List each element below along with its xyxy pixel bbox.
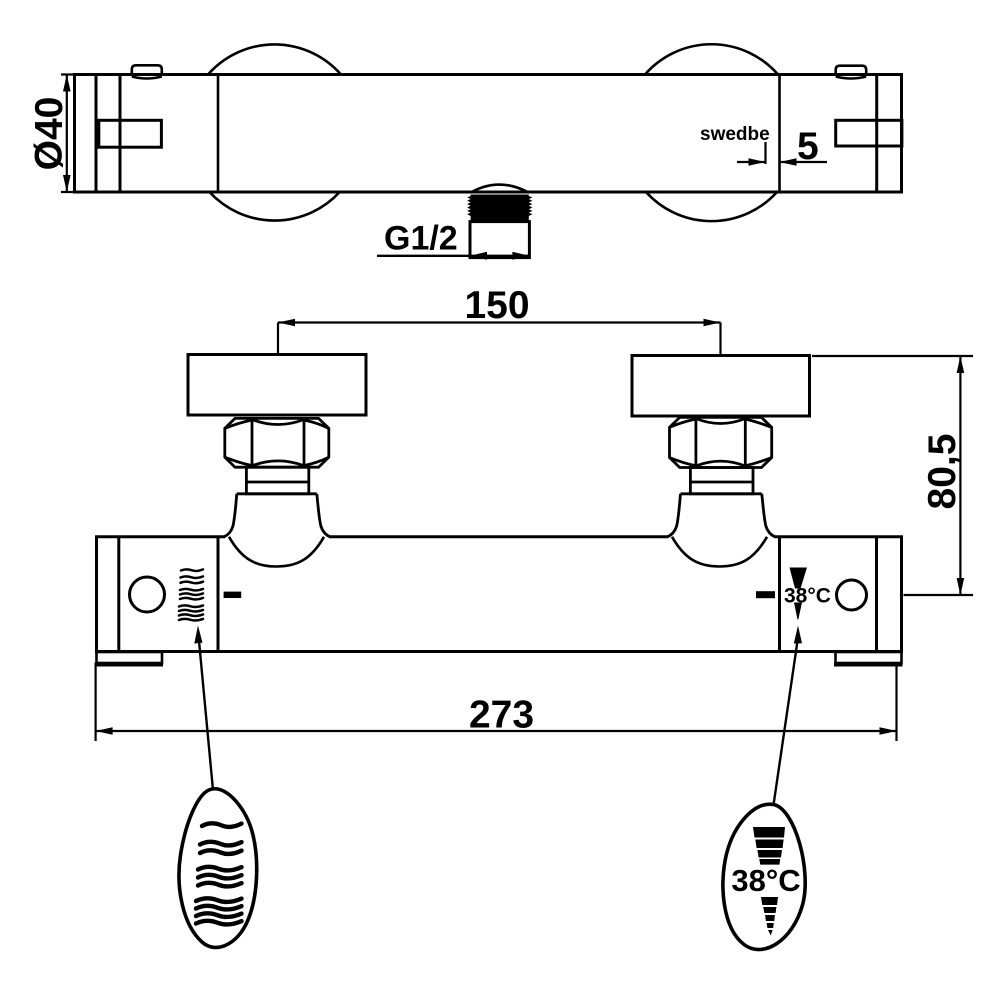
svg-text:38°C: 38°C xyxy=(731,863,800,898)
svg-text:80,5: 80,5 xyxy=(921,434,964,510)
svg-text:150: 150 xyxy=(464,284,529,327)
svg-text:273: 273 xyxy=(469,694,534,737)
svg-text:5: 5 xyxy=(797,125,819,168)
svg-text:swedbe: swedbe xyxy=(700,124,770,145)
svg-text:38°C: 38°C xyxy=(784,585,831,608)
svg-text:Ø40: Ø40 xyxy=(28,97,71,171)
svg-text:G1/2: G1/2 xyxy=(384,220,458,258)
